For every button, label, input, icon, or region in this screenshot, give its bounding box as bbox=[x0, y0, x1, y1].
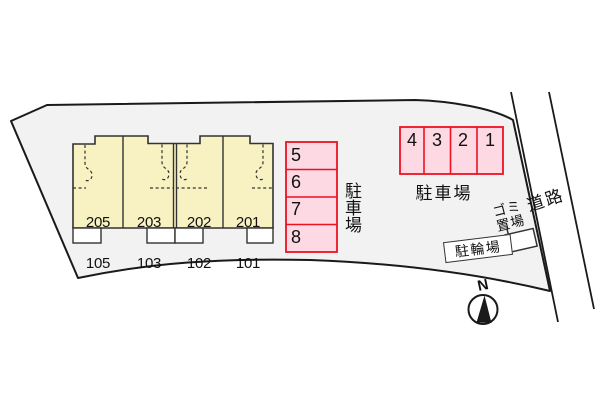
parking-space-5: 5 bbox=[291, 145, 301, 165]
parking-space-3: 3 bbox=[426, 130, 448, 150]
parking-space-1: 1 bbox=[479, 130, 501, 150]
site-plan: 205 105 203 103 202 102 201 101 5 6 7 8 … bbox=[0, 0, 600, 400]
parking-space-7: 7 bbox=[291, 199, 301, 219]
parking-space-6: 6 bbox=[291, 172, 301, 192]
parking-space-2: 2 bbox=[452, 130, 474, 150]
unit-lower-number: 102 bbox=[175, 257, 223, 271]
parking-column-label: 駐車場 bbox=[343, 182, 360, 233]
unit-label-205-105: 205 105 bbox=[74, 189, 122, 297]
unit-upper-number: 205 bbox=[74, 216, 122, 230]
unit-lower-number: 103 bbox=[125, 257, 173, 271]
parking-space-4: 4 bbox=[401, 130, 423, 150]
unit-label-202-102: 202 102 bbox=[175, 189, 223, 297]
unit-lower-number: 105 bbox=[74, 257, 122, 271]
unit-upper-number: 203 bbox=[125, 216, 173, 230]
north-compass-icon bbox=[469, 295, 498, 324]
parking-row-label: 駐車場 bbox=[412, 179, 476, 204]
unit-label-203-103: 203 103 bbox=[125, 189, 173, 297]
parking-space-8: 8 bbox=[291, 227, 301, 247]
unit-label-201-101: 201 101 bbox=[224, 189, 272, 297]
unit-upper-number: 202 bbox=[175, 216, 223, 230]
unit-lower-number: 101 bbox=[224, 257, 272, 271]
bicycle-parking-label: 駐輪場 bbox=[454, 239, 502, 259]
unit-upper-number: 201 bbox=[224, 216, 272, 230]
